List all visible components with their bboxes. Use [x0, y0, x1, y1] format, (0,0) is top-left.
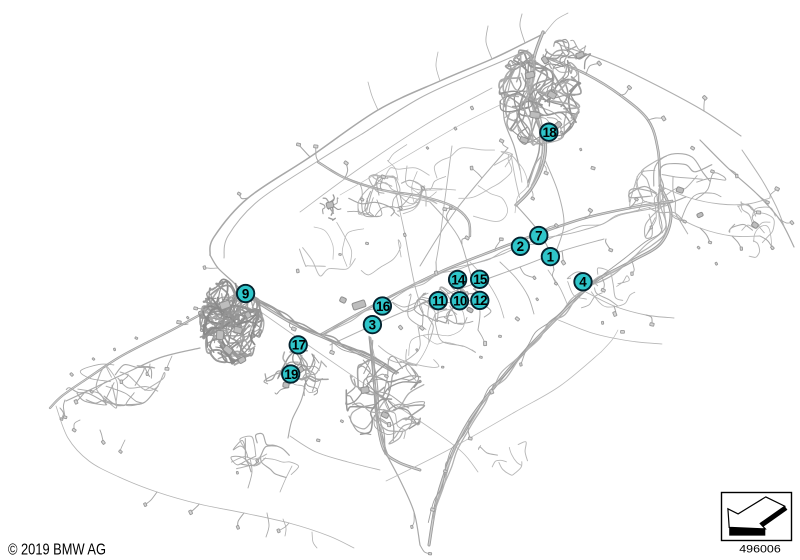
- svg-text:18: 18: [543, 125, 558, 140]
- svg-text:496006: 496006: [739, 544, 781, 556]
- svg-text:1: 1: [547, 249, 555, 264]
- svg-text:12: 12: [473, 293, 487, 308]
- svg-text:4: 4: [579, 275, 587, 290]
- svg-text:16: 16: [376, 299, 390, 314]
- svg-text:15: 15: [473, 272, 488, 287]
- svg-text:14: 14: [451, 272, 466, 287]
- svg-text:10: 10: [453, 294, 467, 309]
- svg-text:© 2019 BMW AG: © 2019 BMW AG: [8, 542, 106, 559]
- svg-text:17: 17: [292, 338, 306, 353]
- svg-text:7: 7: [535, 228, 542, 243]
- svg-text:9: 9: [242, 286, 249, 301]
- svg-text:3: 3: [369, 317, 376, 332]
- svg-text:2: 2: [517, 239, 524, 254]
- svg-text:11: 11: [432, 294, 446, 309]
- svg-text:19: 19: [284, 367, 298, 382]
